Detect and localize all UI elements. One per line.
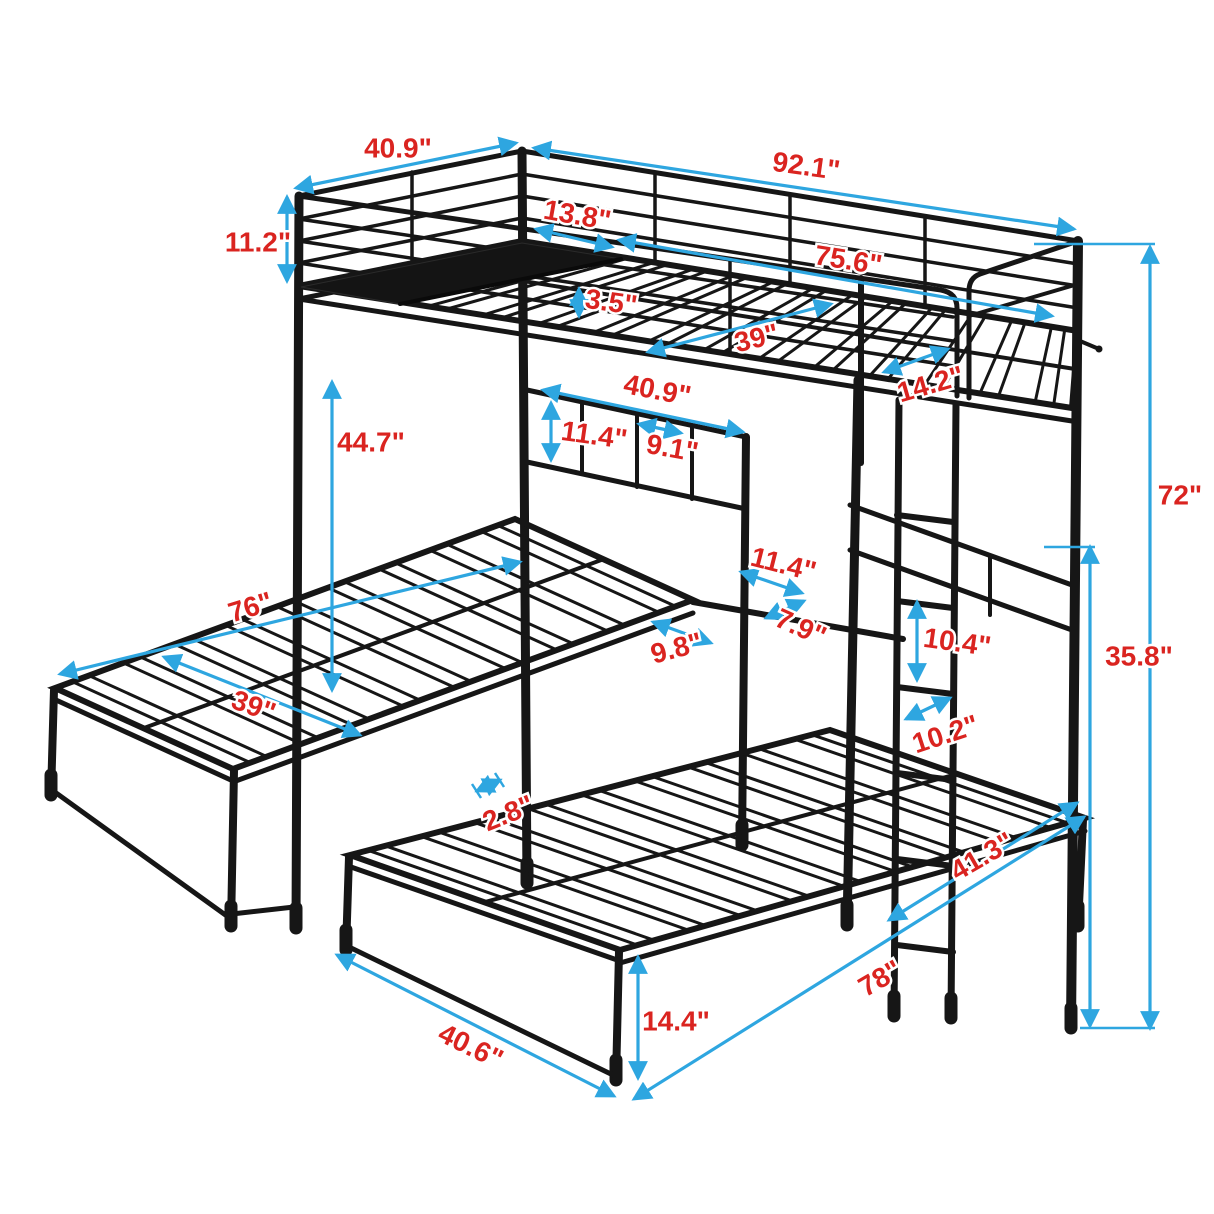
dimension-label-ladder-rung-spacing: 10.4" <box>922 622 993 662</box>
dimension-label-front-bed-foot-width: 40.6" <box>434 1017 509 1075</box>
dimension-upper-sleeping-width: 39" <box>648 304 831 358</box>
dimension-ladder-width: 10.2" <box>906 698 982 759</box>
dimension-guardrail-height: 11.2" <box>225 197 291 281</box>
dimension-tray-depth: 7.9" <box>766 601 831 652</box>
dimension-label-upper-sleeping-width: 39" <box>731 318 782 359</box>
dimension-label-headboard-width: 40.9" <box>621 368 693 411</box>
dimension-arrow <box>477 780 500 791</box>
dimension-label-headboard-bar-gap: 11.4" <box>559 415 629 455</box>
dimension-label-tray-width: 11.4" <box>748 541 820 587</box>
dimension-label-upper-overall-length: 92.1" <box>771 146 842 186</box>
front-bed-headboard <box>850 505 1072 630</box>
dimension-label-under-bunk-clearance: 44.7" <box>337 426 405 457</box>
bunk-bed-dimension-diagram: 40.9"92.1"11.2"13.8"75.6"3.5"39"14.2"40.… <box>0 0 1214 1214</box>
dimension-arrow <box>60 562 520 674</box>
dimension-label-upper-shelf-depth: 13.8" <box>541 194 613 236</box>
dimension-label-lower-bed-width: 39" <box>228 684 280 728</box>
dimension-lower-bed-length: 76" <box>60 562 520 674</box>
dimension-label-tray-depth: 7.9" <box>771 602 831 652</box>
dimension-label-overall-height: 72" <box>1158 479 1202 510</box>
diagram-canvas: 40.9"92.1"11.2"13.8"75.6"3.5"39"14.2"40.… <box>0 0 1214 1214</box>
dimension-label-upper-head-end-width: 40.9" <box>364 132 432 163</box>
dimension-label-lower-structure-height: 35.8" <box>1105 640 1173 671</box>
dimension-arrow <box>337 955 614 1096</box>
dimension-label-ladder-width: 10.2" <box>908 709 982 759</box>
dimension-front-bed-foot-width: 40.6" <box>337 955 614 1096</box>
dimension-label-lower-leg-height: 14.4" <box>642 1005 710 1036</box>
dimension-lower-structure-height: 35.8" <box>1044 547 1173 1026</box>
dimension-tray-width: 11.4" <box>741 541 819 593</box>
dimension-arrow <box>906 698 950 719</box>
dimension-label-guardrail-height: 11.2" <box>225 226 291 257</box>
dimension-label-beds-gap: 9.8" <box>647 626 705 669</box>
dimension-beds-gap: 9.8" <box>647 622 711 670</box>
